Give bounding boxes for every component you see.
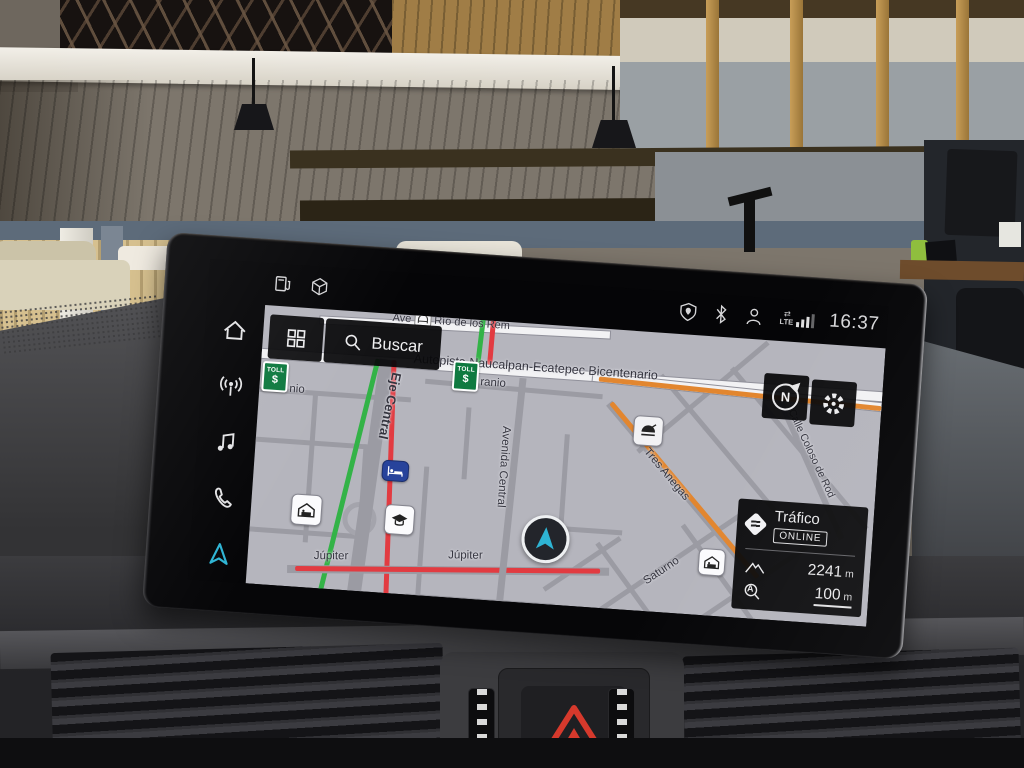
music-note-icon [212, 428, 241, 457]
traffic-panel-header: Tráfico ONLINE [746, 506, 858, 549]
lte-signal-icon: ⇄ LTE [779, 310, 815, 328]
mid-wall [655, 152, 930, 224]
scale-unit: m [843, 591, 853, 604]
navigation-map[interactable]: Ave Río de los Rem Autopista Naucalpan-E… [246, 305, 886, 627]
sidebar-item-media[interactable] [196, 412, 258, 472]
map-road [558, 434, 570, 528]
home-icon [220, 316, 249, 345]
position-arrow-icon [529, 523, 561, 555]
clock: 16:37 [829, 310, 880, 335]
tv-wall-mount [744, 194, 755, 252]
map-road [461, 407, 471, 479]
sidebar-item-radio[interactable] [200, 357, 262, 417]
driver-profile-icon [743, 305, 765, 327]
status-right-icons: ⇄ LTE 16:37 [677, 300, 880, 336]
poi-garage-icon[interactable] [697, 548, 726, 577]
map-road [415, 466, 429, 595]
phone-icon [208, 483, 237, 512]
street-label-tres-anegas: Tres Anegas [641, 446, 691, 503]
wood-post [956, 0, 969, 154]
lte-label: LTE [779, 318, 793, 326]
search-label: Buscar [371, 334, 424, 357]
sidebar-item-phone[interactable] [192, 468, 254, 528]
poi-restaurant-icon[interactable] [632, 415, 664, 447]
search-icon [342, 331, 363, 352]
sidebar-item-navigation[interactable] [188, 524, 250, 584]
autozoom-icon: A [742, 580, 763, 601]
gear-icon [819, 389, 847, 417]
infotainment-screen: ⇄ LTE 16:37 [142, 232, 928, 659]
map-settings-button[interactable] [809, 379, 857, 427]
radio-icon [216, 372, 245, 401]
street-label-saturno: Saturno [641, 555, 681, 587]
wood-post [706, 0, 719, 154]
scale-value: 100 [814, 585, 841, 604]
mountain-icon [743, 556, 766, 577]
pendant-lamp-cord [252, 58, 255, 106]
location-privacy-icon [677, 300, 699, 322]
street-label-jupiter-1: Júpiter [314, 550, 349, 562]
map-road [405, 593, 555, 608]
navigation-arrow-icon [204, 539, 233, 568]
altitude-value: 2241 [807, 561, 843, 580]
mmi-display: ⇄ LTE 16:37 [188, 259, 889, 627]
traffic-status-badge: ONLINE [773, 528, 828, 547]
sidebar-item-home[interactable] [203, 301, 265, 361]
compass-needle [790, 379, 804, 393]
bluetooth-icon [713, 303, 729, 325]
wooden-desk [900, 260, 1024, 281]
apps-grid-button[interactable] [267, 314, 324, 362]
photo-of-car-infotainment: ⇄ LTE 16:37 [0, 0, 1024, 768]
poi-school-icon[interactable] [383, 504, 415, 536]
wood-post [790, 0, 803, 154]
package-cube-icon [309, 276, 330, 297]
signal-bars [796, 313, 815, 328]
traffic-panel[interactable]: Tráfico ONLINE 2241m [731, 498, 868, 617]
altitude-unit: m [845, 568, 855, 581]
compass-n-label: N [780, 389, 790, 405]
poi-garage-icon[interactable] [290, 493, 323, 526]
compass-icon: N [771, 383, 800, 412]
grid-icon [284, 326, 307, 349]
wood-post [876, 0, 889, 154]
poi-hotel-icon[interactable] [381, 460, 409, 483]
street-label-autopista: Autopista Naucalpan-Ecatepec Bicentenari… [413, 351, 658, 382]
toll-sign-icon: TOLL $ [261, 361, 289, 393]
fuel-pump-icon [272, 273, 294, 294]
street-label-jupiter-2: Júpiter [448, 549, 483, 561]
traffic-sign-icon [744, 512, 768, 536]
toll-sign-icon: TOLL $ [452, 360, 480, 392]
street-label-uranio2: ranio [480, 376, 506, 390]
map-scale: 100m [814, 585, 853, 609]
pendant-lamp-cord [612, 66, 615, 122]
traffic-title: Tráfico [774, 508, 820, 528]
wall-box [999, 222, 1021, 247]
compass-north-button[interactable]: N [761, 373, 809, 421]
search-button[interactable]: Buscar [323, 318, 442, 370]
street-label-uranio: nio [289, 383, 305, 396]
status-left-icons [272, 273, 330, 297]
dashboard-bottom-trim [0, 738, 1024, 768]
